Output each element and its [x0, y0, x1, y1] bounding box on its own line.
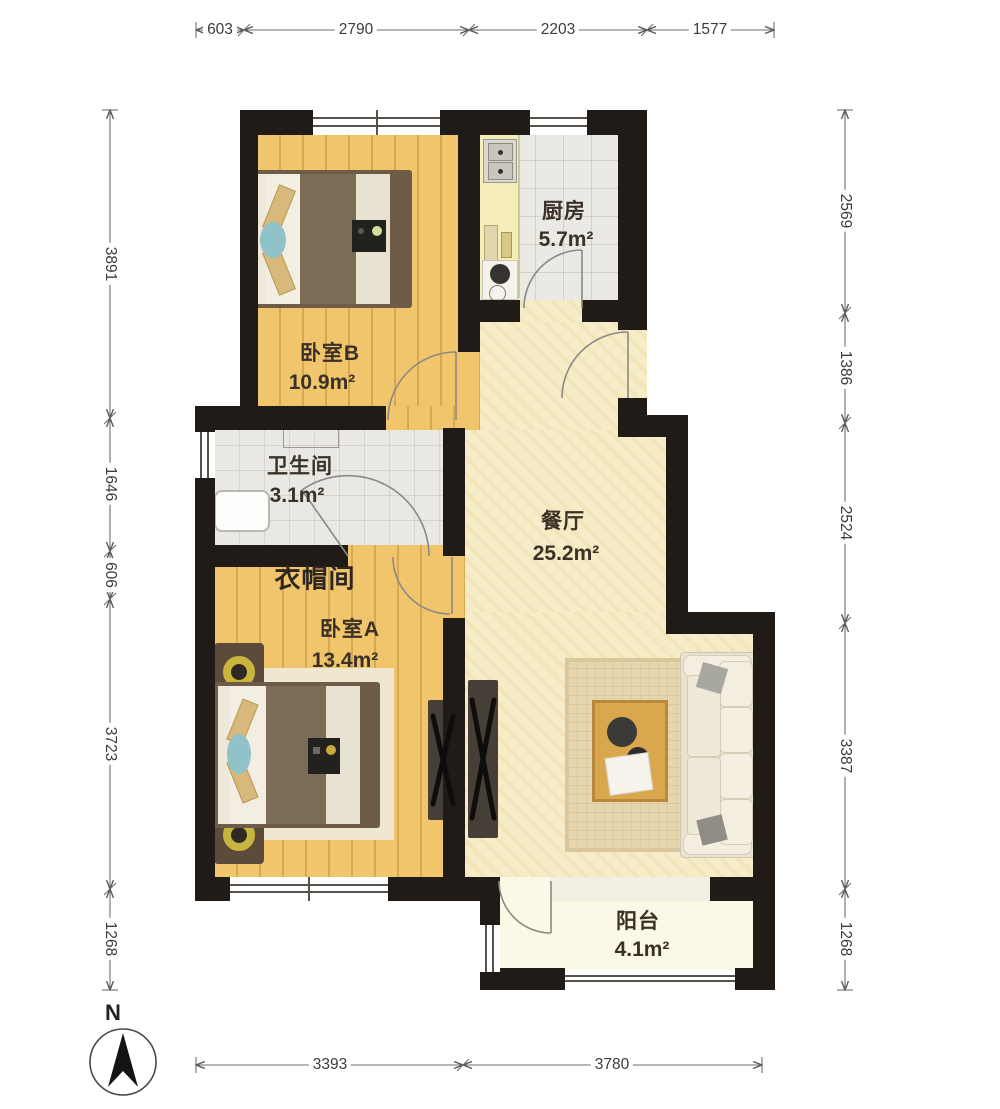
kitchen-sink — [483, 139, 517, 183]
dim-top-1: 603 — [203, 21, 237, 39]
bed-a-tray-item — [326, 745, 336, 755]
hall-door-threshold — [386, 406, 458, 430]
balcony-door-threshold — [500, 877, 551, 901]
dim-left-3: 606 — [101, 558, 119, 592]
cooktop-burner — [490, 264, 510, 284]
wall-bathroom-top — [215, 406, 386, 430]
dining-floor-upper — [480, 322, 618, 430]
sofa-back-cushion-3 — [719, 753, 753, 799]
kitchen-area: 5.7m² — [539, 228, 594, 252]
bedroom-b-area: 10.9m² — [289, 371, 356, 395]
table-paper — [605, 752, 654, 796]
dim-left-4: 3723 — [101, 723, 119, 765]
bathroom-window — [195, 432, 215, 478]
dim-left-2: 1646 — [101, 463, 119, 505]
bed-a-tray-item-2 — [313, 747, 320, 754]
sink-drain-2 — [498, 169, 503, 174]
sink-basin-1 — [488, 143, 513, 161]
dim-bottom-1: 3393 — [309, 1056, 351, 1074]
compass-needle — [108, 1033, 138, 1087]
wall-kitchen-bottom-right — [582, 300, 647, 322]
balcony-bottom-window — [565, 970, 735, 988]
wall-bedroom-a-bottom-right — [388, 877, 500, 901]
wall-dining-left-upper — [443, 428, 465, 556]
wall-kitchen-right — [618, 110, 647, 330]
bed-b-tray — [352, 220, 386, 252]
bathroom-area: 3.1m² — [270, 484, 325, 508]
balcony-label: 阳台 — [616, 905, 660, 935]
dining-area: 25.2m² — [533, 542, 600, 566]
bed-b-blanket — [300, 174, 358, 304]
kitchen-door-threshold — [520, 300, 582, 322]
wall-dining-bottom-pier — [710, 877, 753, 901]
dim-right-1: 2569 — [836, 190, 854, 232]
bed-b-cushion — [260, 222, 286, 258]
bedroom-a-label: 卧室A — [320, 613, 380, 643]
coffee-table — [592, 700, 668, 802]
bedroom-a-bed — [214, 682, 380, 828]
kitchen-label: 厨房 — [542, 195, 586, 225]
dining-label: 餐厅 — [541, 505, 585, 535]
entry-door-threshold — [618, 330, 647, 398]
balcony-left-window — [480, 925, 500, 972]
cloakroom-label: 衣帽间 — [274, 559, 355, 596]
wall-bedroom-a-bottom-left — [195, 877, 230, 901]
sink-basin-2 — [488, 162, 513, 180]
wall-balcony-bottom-left — [500, 968, 565, 990]
kitchen-cutting-board — [484, 225, 498, 265]
wall-dining-right-lower — [753, 612, 775, 990]
wall-bedroom-b-left — [240, 110, 258, 430]
compass-circle — [90, 1029, 156, 1095]
dim-bottom-2: 3780 — [591, 1056, 633, 1074]
bedroom-b-door-threshold — [458, 352, 480, 430]
bed-b-tray-item-2 — [358, 228, 364, 234]
wall-balcony-left-top — [480, 901, 500, 925]
sink-drain-1 — [498, 150, 503, 155]
bed-b-tray-item — [372, 226, 382, 236]
dim-left-1: 3891 — [101, 243, 119, 285]
dim-left-5: 1268 — [101, 918, 119, 960]
sofa-back-cushion-2 — [719, 707, 753, 753]
wall-kitchen-bottom-left — [458, 300, 520, 322]
sofa — [680, 652, 755, 858]
kitchen-window — [530, 110, 587, 135]
bedroom-b-window — [313, 110, 440, 135]
bathtub — [214, 490, 270, 532]
balcony-area: 4.1m² — [615, 938, 670, 962]
dining-balcony-window — [551, 877, 710, 901]
bedroom-b-label: 卧室B — [300, 337, 360, 367]
wall-dining-right-upper — [666, 415, 688, 634]
bedroom-b-bed — [248, 170, 412, 308]
wall-balcony-left-bottom — [480, 972, 500, 990]
compass — [90, 1029, 156, 1095]
bedroom-a-door-threshold — [443, 556, 465, 618]
dim-right-5: 1268 — [836, 918, 854, 960]
dim-right-2: 1386 — [836, 347, 854, 389]
bedroom-a-area: 13.4m² — [312, 649, 379, 673]
floor-plan-canvas: 卧室B 10.9m² 厨房 5.7m² 卫生间 3.1m² 衣帽间 卧室A 13… — [0, 0, 1000, 1109]
bathroom-label: 卫生间 — [267, 450, 333, 480]
bedroom-a-window — [230, 877, 388, 901]
wall-dining-left-lower — [443, 618, 465, 901]
wall-balcony-bottom-right — [735, 968, 753, 990]
bed-a-cushion — [227, 734, 251, 774]
dim-top-4: 1577 — [689, 21, 731, 39]
wall-main-left — [195, 406, 215, 901]
bed-a-tray — [308, 738, 340, 774]
kitchen-cooktop — [482, 260, 518, 300]
compass-north-label: N — [105, 1000, 121, 1026]
tv-stand-dining — [468, 680, 498, 838]
dim-right-4: 3387 — [836, 735, 854, 777]
dim-right-3: 2524 — [836, 502, 854, 544]
dim-top-2: 2790 — [335, 21, 377, 39]
table-decor-1 — [607, 717, 637, 747]
dim-top-3: 2203 — [537, 21, 579, 39]
kitchen-knife-block — [501, 232, 512, 258]
